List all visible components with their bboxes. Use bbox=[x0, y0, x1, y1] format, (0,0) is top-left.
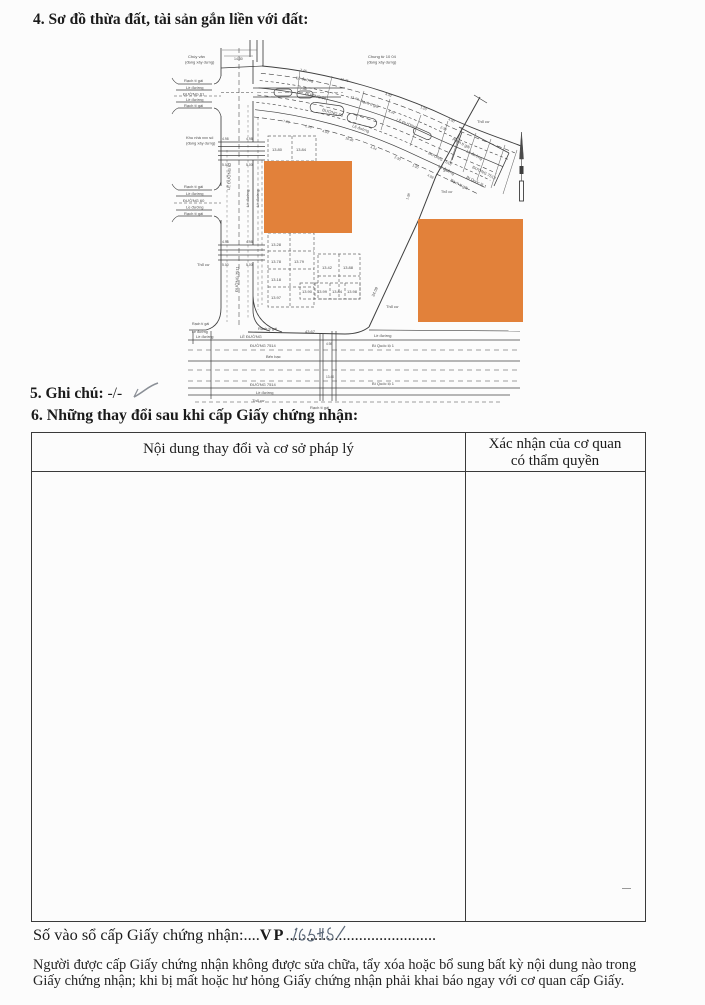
svg-text:2.00: 2.00 bbox=[305, 124, 312, 130]
svg-text:Lề đường: Lề đường bbox=[255, 189, 260, 207]
svg-text:1.20: 1.20 bbox=[420, 105, 428, 111]
svg-text:3.44: 3.44 bbox=[443, 169, 450, 173]
svg-text:1.20: 1.20 bbox=[412, 163, 420, 169]
svg-text:4.00: 4.00 bbox=[448, 117, 456, 123]
svg-text:Rạch tí gái: Rạch tí gái bbox=[360, 98, 380, 109]
svg-text:7.00: 7.00 bbox=[283, 119, 290, 124]
svg-text:13.42: 13.42 bbox=[322, 265, 333, 270]
svg-text:Lề đường: Lề đường bbox=[466, 148, 484, 160]
svg-text:13.97: 13.97 bbox=[271, 295, 282, 300]
svg-text:Bí Quốc lộ 1: Bí Quốc lộ 1 bbox=[466, 174, 489, 189]
svg-text:13.28: 13.28 bbox=[271, 242, 282, 247]
svg-text:Lề đường: Lề đường bbox=[352, 123, 370, 133]
svg-text:5.00: 5.00 bbox=[246, 163, 253, 167]
svg-text:13.80: 13.80 bbox=[272, 147, 283, 152]
svg-text:ĐƯỜNG 7514: ĐƯỜNG 7514 bbox=[250, 343, 277, 348]
svg-text:34.09: 34.09 bbox=[370, 286, 379, 298]
svg-text:13.88: 13.88 bbox=[343, 265, 354, 270]
svg-text:Khu nhà xxx số: Khu nhà xxx số bbox=[186, 135, 214, 140]
svg-text:Chung từ 10 04: Chung từ 10 04 bbox=[368, 54, 397, 59]
svg-text:Lề đường: Lề đường bbox=[186, 97, 204, 102]
svg-text:4.98: 4.98 bbox=[326, 342, 332, 346]
svg-text:ĐƯỜNG 7514: ĐƯỜNG 7514 bbox=[250, 382, 277, 387]
svg-text:Lề đường: Lề đường bbox=[196, 334, 214, 339]
svg-text:Rạch tí gái: Rạch tí gái bbox=[184, 184, 203, 189]
svg-text:Bến bạc: Bến bạc bbox=[266, 354, 281, 359]
svg-text:Rạch tí gái: Rạch tí gái bbox=[184, 211, 203, 216]
svg-text:4.00: 4.00 bbox=[322, 129, 330, 135]
svg-text:Rạch tí gái: Rạch tí gái bbox=[192, 322, 209, 326]
svg-text:ĐƯỜNG 60: ĐƯỜNG 60 bbox=[183, 198, 205, 203]
svg-text:7.46: 7.46 bbox=[300, 68, 307, 73]
svg-text:2.30: 2.30 bbox=[394, 155, 402, 161]
svg-text:13.84: 13.84 bbox=[296, 147, 307, 152]
svg-text:Lề đường: Lề đường bbox=[186, 85, 204, 90]
svg-text:Lề đường: Lề đường bbox=[245, 189, 250, 207]
svg-text:5.00: 5.00 bbox=[222, 263, 229, 267]
svg-text:4.98: 4.98 bbox=[246, 240, 253, 244]
svg-text:4.98: 4.98 bbox=[427, 173, 435, 180]
svg-text:10.46: 10.46 bbox=[340, 77, 349, 83]
svg-text:Lề đường: Lề đường bbox=[186, 205, 204, 210]
svg-text:13.90: 13.90 bbox=[302, 289, 313, 294]
svg-text:Rạch tí gái: Rạch tí gái bbox=[184, 78, 203, 83]
svg-text:4.98: 4.98 bbox=[222, 137, 229, 141]
svg-text:Rạch tí gái: Rạch tí gái bbox=[258, 326, 277, 331]
svg-text:13.18: 13.18 bbox=[271, 277, 282, 282]
svg-text:43.67: 43.67 bbox=[305, 329, 316, 334]
svg-text:Rạch tí gái: Rạch tí gái bbox=[450, 177, 469, 190]
svg-text:7.46: 7.46 bbox=[300, 87, 307, 91]
svg-text:4.98: 4.98 bbox=[222, 240, 229, 244]
svg-text:Thổ cư: Thổ cư bbox=[252, 398, 265, 403]
svg-text:10.46: 10.46 bbox=[345, 136, 354, 142]
svg-text:LỀ ĐƯỜNG: LỀ ĐƯỜNG bbox=[240, 334, 262, 339]
svg-text:13.40: 13.40 bbox=[350, 95, 359, 101]
svg-text:4.42: 4.42 bbox=[385, 92, 393, 98]
svg-text:4.44: 4.44 bbox=[388, 109, 396, 115]
svg-text:LỀ ĐƯỜNG: LỀ ĐƯỜNG bbox=[396, 117, 418, 130]
svg-text:Bí Quốc lộ 1: Bí Quốc lộ 1 bbox=[372, 381, 395, 386]
svg-text:13.98: 13.98 bbox=[347, 289, 358, 294]
svg-text:13.84: 13.84 bbox=[332, 289, 343, 294]
svg-text:ĐƯỜNG 61: ĐƯỜNG 61 bbox=[183, 92, 205, 97]
svg-text:Rạch tí gái: Rạch tí gái bbox=[184, 103, 203, 108]
svg-text:13.78: 13.78 bbox=[271, 259, 282, 264]
svg-text:Lề đường: Lề đường bbox=[256, 390, 274, 395]
svg-text:14.30: 14.30 bbox=[234, 57, 243, 61]
svg-text:1.38: 1.38 bbox=[405, 193, 411, 201]
svg-text:4.98: 4.98 bbox=[246, 137, 253, 141]
svg-text:(đang xây dựng): (đang xây dựng) bbox=[186, 141, 216, 146]
svg-text:Thổ cư: Thổ cư bbox=[386, 304, 399, 309]
svg-text:5.00: 5.00 bbox=[246, 263, 253, 267]
svg-text:13.79: 13.79 bbox=[294, 259, 305, 264]
svg-text:Thổ cư: Thổ cư bbox=[197, 262, 210, 267]
svg-text:Thổ cư: Thổ cư bbox=[477, 119, 490, 124]
svg-text:Bí Quốc lộ 1: Bí Quốc lộ 1 bbox=[372, 343, 395, 348]
svg-text:Lề đường: Lề đường bbox=[374, 333, 392, 338]
svg-text:ĐƯỜNG 7511: ĐƯỜNG 7511 bbox=[234, 266, 240, 292]
svg-text:(đang xây dựng): (đang xây dựng) bbox=[185, 60, 215, 65]
svg-text:13.99: 13.99 bbox=[317, 289, 328, 294]
svg-text:4.44: 4.44 bbox=[370, 145, 378, 151]
svg-text:5.00: 5.00 bbox=[222, 163, 229, 167]
svg-text:13.40: 13.40 bbox=[326, 375, 334, 379]
svg-text:Lề đường: Lề đường bbox=[186, 191, 204, 196]
svg-text:(đang xây dựng): (đang xây dựng) bbox=[367, 60, 397, 65]
svg-text:Chùy vân: Chùy vân bbox=[188, 54, 205, 59]
svg-text:Thổ cư: Thổ cư bbox=[441, 190, 453, 194]
svg-text:ĐƯỜNG 60: ĐƯỜNG 60 bbox=[305, 91, 328, 101]
